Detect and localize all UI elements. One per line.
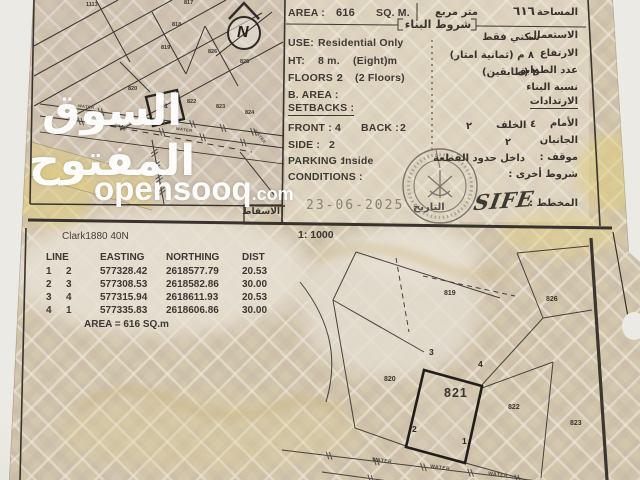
plot-label: 826 bbox=[208, 49, 217, 55]
plot-821-outline bbox=[406, 370, 482, 463]
side-value: 2 bbox=[329, 139, 335, 151]
conditions-header-ar: شروط البناء bbox=[404, 18, 472, 31]
back-label: BACK : bbox=[361, 122, 399, 134]
scanned-land-survey-photo: السوق المفتوح opensooq.com 1113 817 818 … bbox=[0, 0, 640, 480]
plot-label: 817 bbox=[184, 0, 193, 6]
plot-label: 818 bbox=[172, 22, 181, 28]
back-value-ar: ٢ bbox=[466, 121, 472, 132]
cell: 2618606.86 bbox=[166, 305, 242, 316]
area-label-ar: المساحة bbox=[537, 7, 578, 18]
height-value: 8 m. bbox=[318, 55, 340, 67]
side-label-ar: الجانبان bbox=[540, 135, 578, 146]
front-value-ar: ٤ bbox=[530, 119, 536, 130]
setbacks-label: SETBACKS : bbox=[288, 102, 354, 116]
cell: 2618582.86 bbox=[166, 279, 242, 290]
datum-label: Clark1880 40N bbox=[62, 231, 129, 242]
date-label-ar: التاريخ bbox=[413, 202, 445, 213]
detail-plot-label: 820 bbox=[384, 376, 396, 383]
built-area-label-ar: نسبة البناء bbox=[526, 82, 578, 93]
table-area-note: AREA = 616 SQ.m bbox=[84, 319, 169, 330]
cell: 30.00 bbox=[242, 305, 284, 316]
cell: 577328.42 bbox=[100, 266, 166, 277]
detail-plot-label: 826 bbox=[546, 296, 558, 303]
photo-notch bbox=[622, 312, 640, 340]
back-label-ar: الخلف bbox=[496, 120, 526, 131]
col-dist: DIST bbox=[242, 252, 284, 263]
setbacks-label-ar: الارتدادات bbox=[530, 96, 578, 109]
plot-label: 819 bbox=[161, 45, 170, 51]
front-label: FRONT : bbox=[288, 122, 332, 134]
use-value: Residential Only bbox=[318, 37, 403, 49]
built-area-label: B. AREA : bbox=[288, 89, 339, 101]
north-label: N bbox=[237, 24, 249, 42]
table-row: 23577308.532618582.8630.00 bbox=[46, 279, 284, 290]
table-row: 34577315.942618611.9320.53 bbox=[46, 292, 284, 303]
height-label: HT: bbox=[288, 55, 305, 67]
plot-label: 824 bbox=[245, 110, 254, 116]
conditions-label-ar: شروط أخرى : bbox=[508, 169, 578, 180]
cell: 3 bbox=[66, 279, 100, 290]
opensooq-tld: .com bbox=[252, 184, 294, 204]
road-line-bold bbox=[591, 238, 607, 480]
opensooq-watermark: opensooq.com bbox=[94, 170, 294, 208]
cell: 30.00 bbox=[242, 279, 284, 290]
use-label: USE: bbox=[288, 37, 314, 49]
cell: 577335.83 bbox=[100, 305, 166, 316]
height-label-ar: الارتفاع bbox=[540, 48, 578, 59]
floors-label: FLOORS : bbox=[288, 72, 340, 84]
building-conditions-panel: AREA : 616 SQ. M. متر مربع ٦١٦ المساحة ش… bbox=[285, 0, 588, 238]
parking-label: PARKING : bbox=[288, 155, 344, 167]
floors-value: 2 bbox=[337, 72, 343, 84]
projection-label: الاسقاط bbox=[246, 207, 280, 217]
cell: 4 bbox=[66, 292, 100, 303]
side-value-ar: ٢ bbox=[505, 137, 511, 148]
area-label: AREA : bbox=[288, 7, 325, 19]
col-easting: EASTING bbox=[100, 252, 166, 263]
planner-label-ar: المخطط : bbox=[529, 198, 578, 209]
table-row: 12577328.422618577.7920.53 bbox=[46, 266, 284, 277]
plot-label: 825 bbox=[240, 59, 249, 65]
corner-label-1: 1 bbox=[462, 436, 467, 446]
floors-label-ar: عدد الطوابق bbox=[517, 65, 578, 76]
cell: 2 bbox=[66, 266, 100, 277]
col-northing: NORTHING bbox=[166, 252, 242, 263]
opensooq-wordmark: opensooq bbox=[94, 170, 252, 207]
cell: 3 bbox=[46, 292, 66, 303]
cell: 20.53 bbox=[242, 292, 284, 303]
area-value-ar: ٦١٦ bbox=[513, 4, 535, 18]
floors-note: (2 Floors) bbox=[355, 72, 405, 84]
parking-value-ar: داخل حدود القطعة bbox=[433, 153, 525, 164]
detail-plot-label: 822 bbox=[508, 404, 520, 411]
back-value: 2 bbox=[400, 122, 406, 134]
front-value: 4 bbox=[335, 122, 341, 134]
conditions-label: CONDITIONS : bbox=[288, 171, 363, 183]
detail-plot-label: 819 bbox=[444, 290, 456, 297]
planner-signature: SIFE bbox=[472, 186, 536, 216]
cell: 2618577.79 bbox=[166, 266, 242, 277]
area-unit-ar: متر مربع bbox=[435, 7, 478, 18]
plot-label: 1113 bbox=[86, 2, 98, 8]
parking-label-ar: موقف : bbox=[540, 152, 578, 163]
parking-value: Inside bbox=[342, 155, 374, 167]
cell: 4 bbox=[46, 305, 66, 316]
area-value: 616 bbox=[336, 7, 355, 19]
corner-label-2: 2 bbox=[412, 424, 417, 434]
detail-plot-821-label: 821 bbox=[444, 386, 468, 400]
cell: 2618611.93 bbox=[166, 292, 242, 303]
cell: 577315.94 bbox=[100, 292, 166, 303]
height-note: (Eight)m bbox=[353, 55, 397, 67]
corner-label-4: 4 bbox=[478, 359, 483, 369]
table-row: 41577335.832618606.8630.00 bbox=[46, 305, 284, 316]
cell: 577308.53 bbox=[100, 279, 166, 290]
cell: 20.53 bbox=[242, 266, 284, 277]
cell: 1 bbox=[46, 266, 66, 277]
detail-plot-label: 823 bbox=[570, 420, 582, 427]
coordinate-table-header: LINEEASTINGNORTHINGDIST bbox=[46, 252, 284, 263]
side-label: SIDE : bbox=[288, 139, 320, 151]
water-text: WATER bbox=[253, 128, 267, 144]
date-value: 23-06-2025 bbox=[306, 198, 404, 213]
scale-label: 1: 1000 bbox=[298, 229, 334, 241]
use-label-ar: الاستعمال bbox=[528, 30, 578, 41]
height-value-ar: ٨ م (ثمانية امتار) bbox=[450, 50, 534, 61]
cell: 1 bbox=[66, 305, 100, 316]
col-line: LINE bbox=[46, 252, 100, 263]
corner-label-3: 3 bbox=[429, 347, 434, 357]
cell: 2 bbox=[46, 279, 66, 290]
front-label-ar: الأمام bbox=[550, 118, 578, 129]
